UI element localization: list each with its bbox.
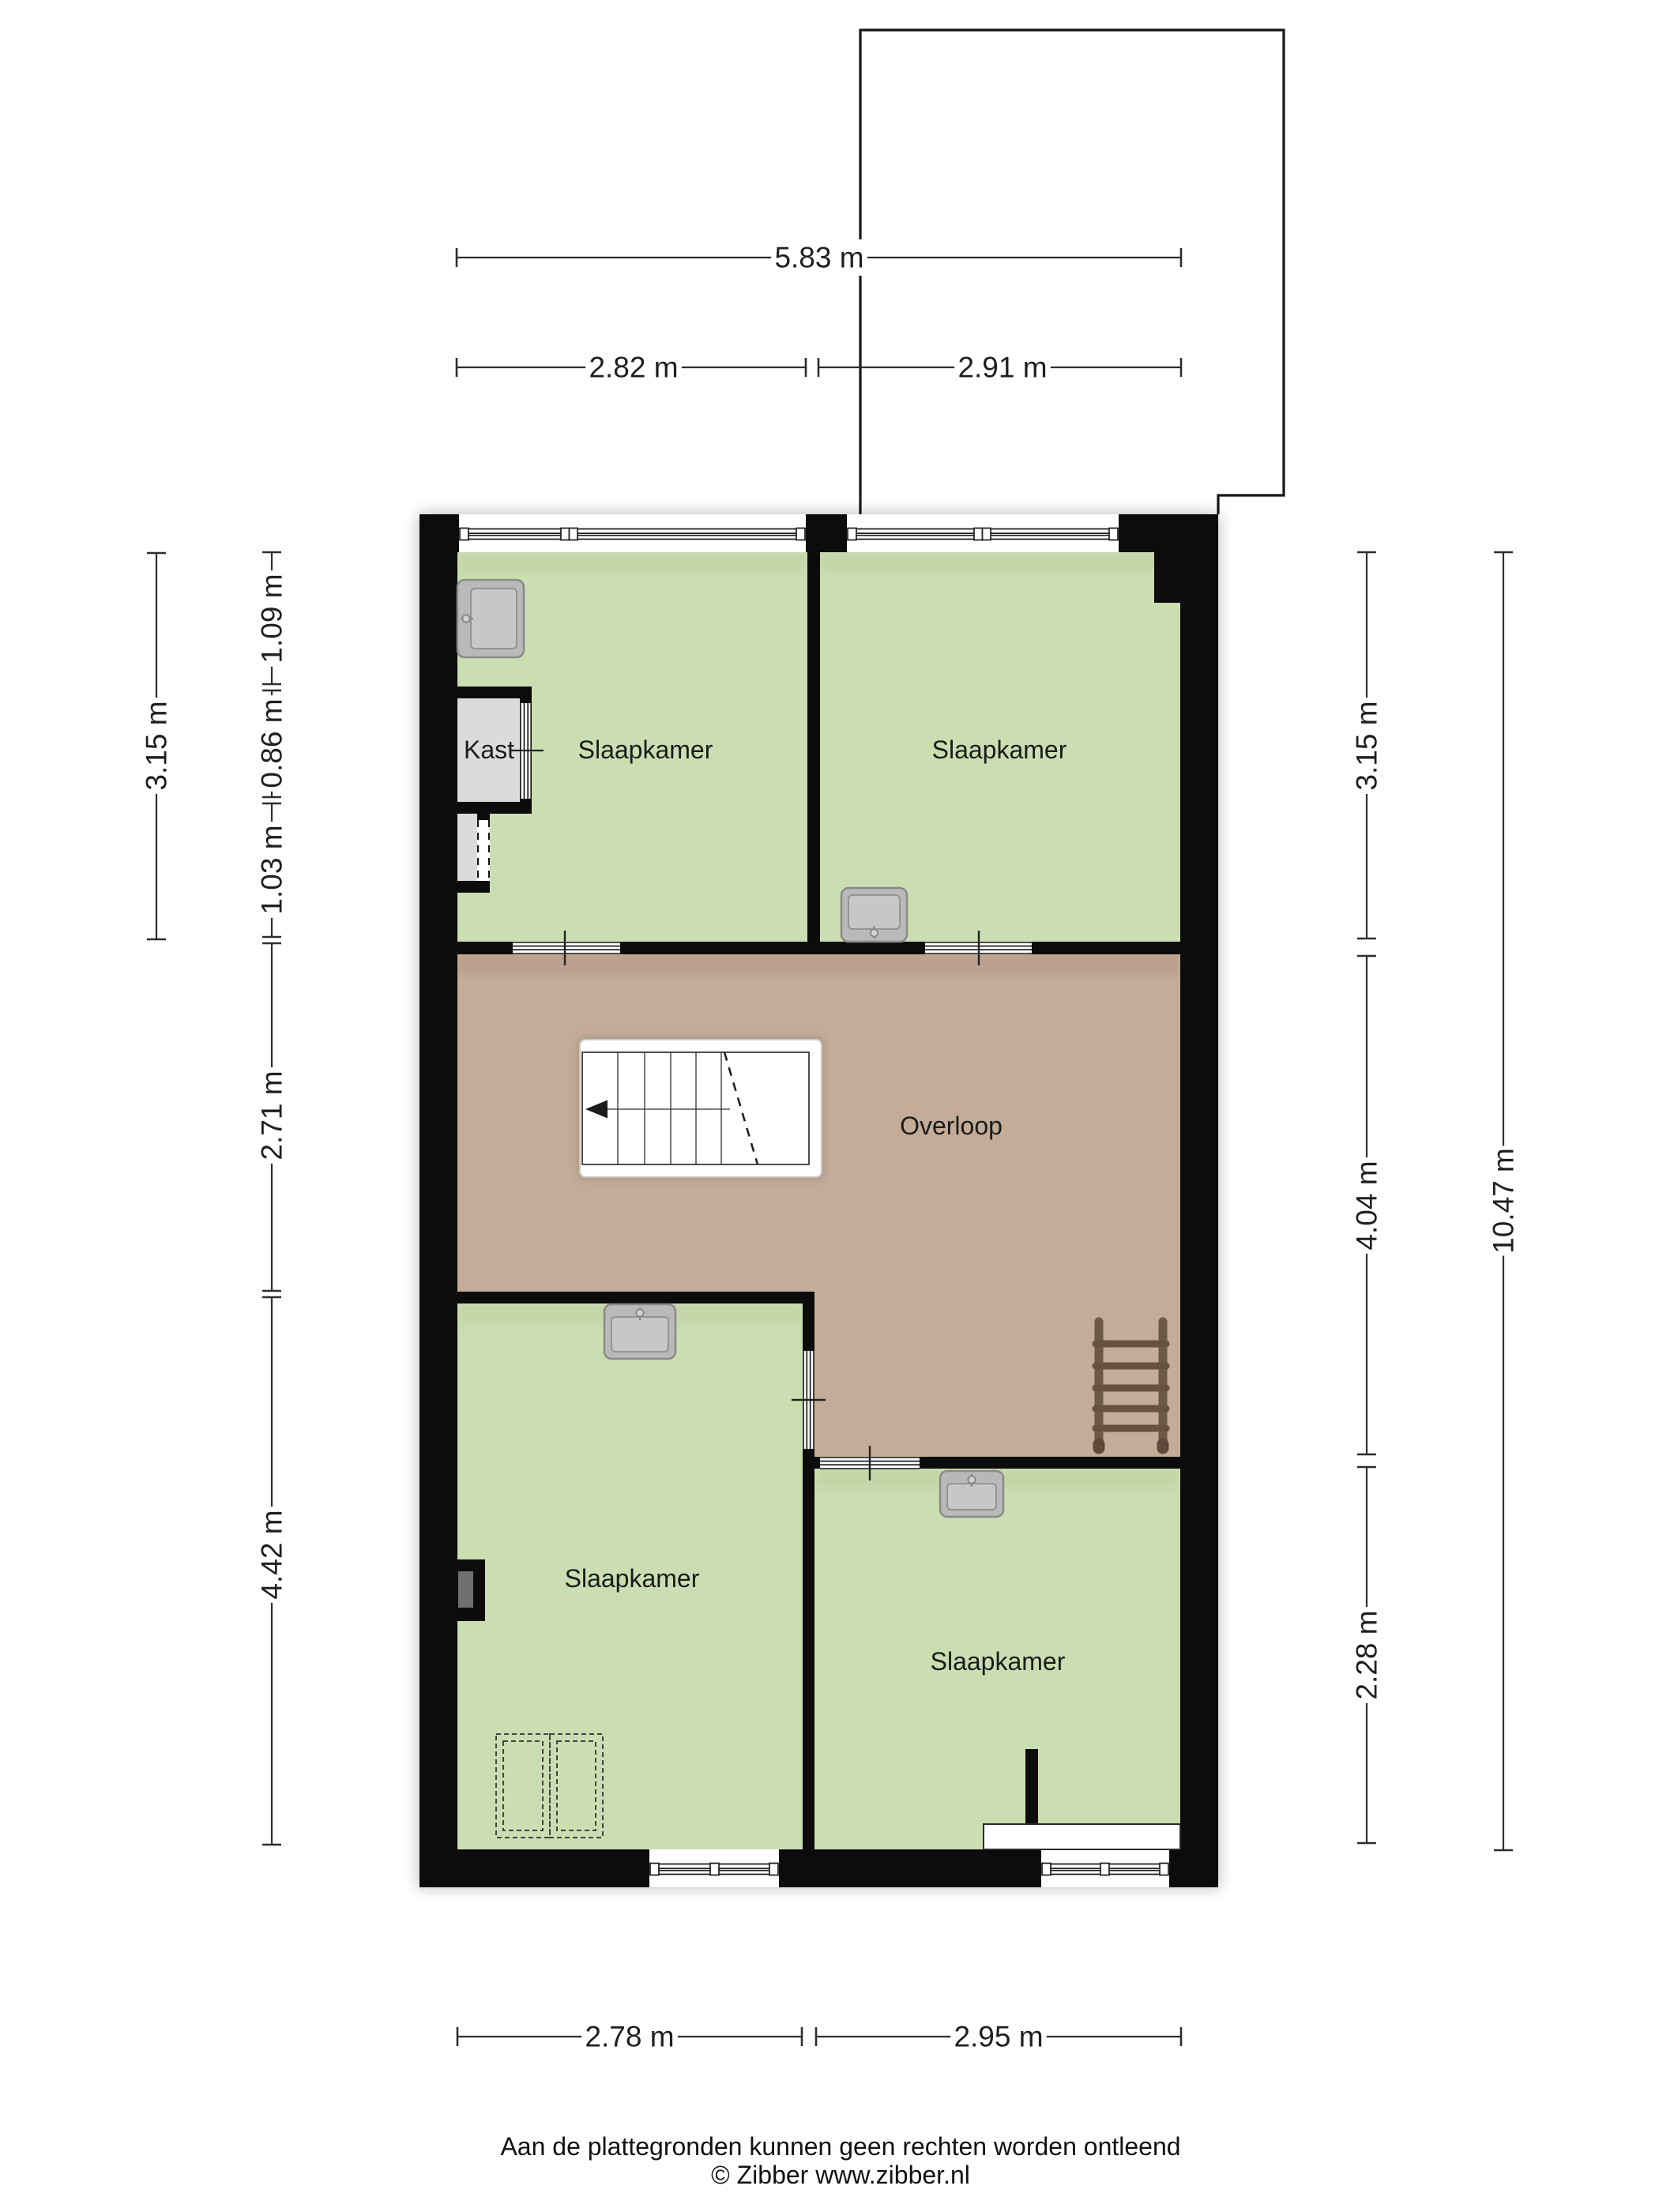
svg-text:Kast: Kast xyxy=(464,735,514,764)
svg-text:3.15 m: 3.15 m xyxy=(1351,701,1383,790)
svg-text:2.95 m: 2.95 m xyxy=(954,2021,1043,2053)
svg-text:Overloop: Overloop xyxy=(900,1112,1003,1140)
svg-text:Aan de plattegronden kunnen ge: Aan de plattegronden kunnen geen rechten… xyxy=(500,2132,1180,2161)
svg-text:5.83 m: 5.83 m xyxy=(774,242,863,274)
svg-text:Slaapkamer: Slaapkamer xyxy=(932,735,1067,764)
svg-text:0.86 m: 0.86 m xyxy=(256,698,288,788)
svg-text:1.09 m: 1.09 m xyxy=(256,574,288,663)
svg-text:2.78 m: 2.78 m xyxy=(585,2021,674,2053)
svg-text:Slaapkamer: Slaapkamer xyxy=(578,735,713,764)
svg-text:3.15 m: 3.15 m xyxy=(141,701,173,790)
svg-text:4.42 m: 4.42 m xyxy=(256,1510,288,1599)
svg-text:2.91 m: 2.91 m xyxy=(957,352,1047,384)
svg-text:Slaapkamer: Slaapkamer xyxy=(565,1564,700,1593)
svg-text:4.04 m: 4.04 m xyxy=(1351,1161,1383,1250)
svg-text:2.82 m: 2.82 m xyxy=(589,352,678,384)
svg-text:2.71 m: 2.71 m xyxy=(256,1070,288,1160)
svg-text:2.28 m: 2.28 m xyxy=(1351,1610,1383,1699)
svg-text:© Zibber www.zibber.nl: © Zibber www.zibber.nl xyxy=(711,2161,970,2189)
svg-text:1.03 m: 1.03 m xyxy=(256,825,288,914)
svg-text:Slaapkamer: Slaapkamer xyxy=(931,1647,1066,1676)
svg-text:10.47 m: 10.47 m xyxy=(1488,1148,1520,1254)
